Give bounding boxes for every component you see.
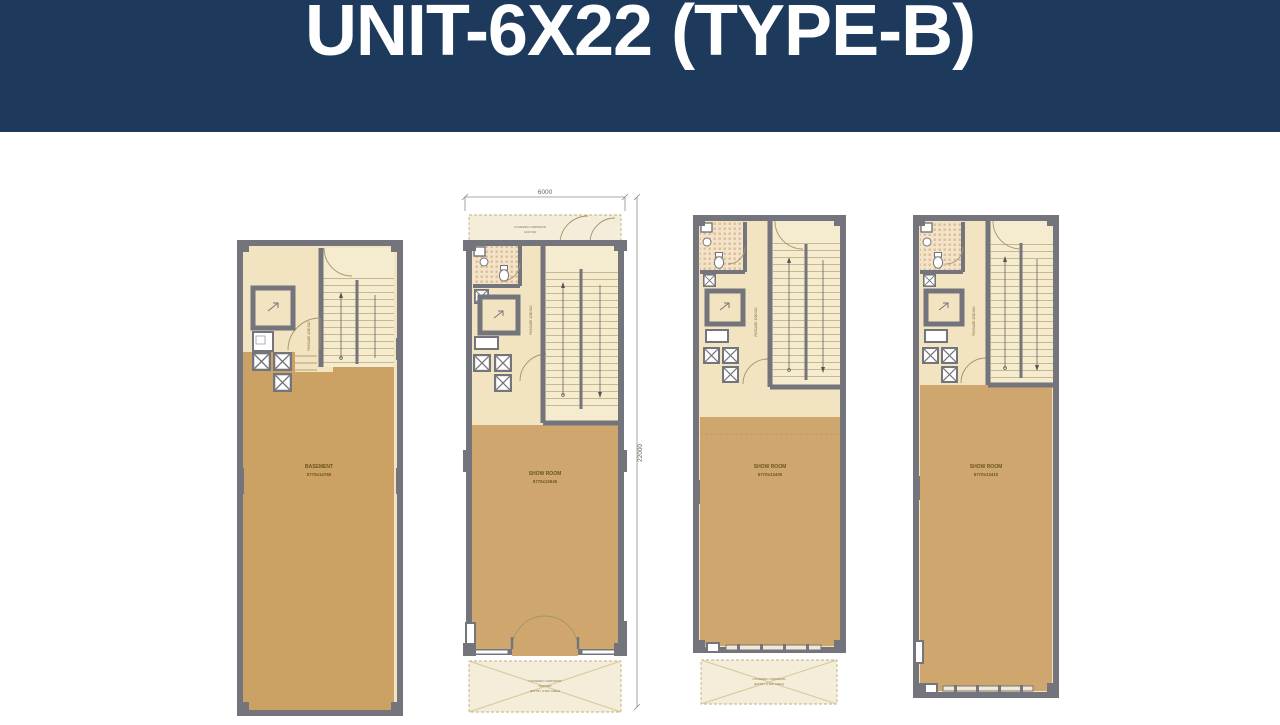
top-covered-corridor: COVERED CORRIDOR 1200 WD bbox=[469, 215, 621, 243]
lift-icon bbox=[707, 291, 743, 324]
svg-text:COVERED CORRIDOR: COVERED CORRIDOR bbox=[752, 677, 786, 681]
duct-icon bbox=[924, 275, 935, 286]
passage-label: PASSAGE 1200 WD bbox=[307, 321, 311, 351]
svg-text:3000 WD: 3000 WD bbox=[539, 684, 553, 688]
toilet bbox=[920, 222, 963, 272]
basement-floor-plan: BASEMENT 5770x14760 PASSAGE 1200 WD bbox=[237, 240, 403, 716]
passage-label: PASSAGE 1200 WD bbox=[754, 307, 758, 337]
svg-text:COVERED CORRIDOR: COVERED CORRIDOR bbox=[528, 679, 562, 683]
ground-floor-plan: 6000 22000 COVERED CORRIDOR 1200 WD bbox=[462, 189, 644, 712]
room-label: SHOW ROOM bbox=[529, 471, 562, 477]
svg-text:(ENTRY STEP AREA): (ENTRY STEP AREA) bbox=[530, 689, 560, 693]
wash-basin-icon bbox=[703, 238, 711, 246]
title-banner: UNIT-6X22 (TYPE-B) bbox=[0, 0, 1280, 132]
ground-stairs bbox=[543, 243, 618, 423]
floor-plans-region: BASEMENT 5770x14760 PASSAGE 1200 WD 6000… bbox=[0, 132, 1280, 720]
showroom-floor bbox=[700, 417, 840, 646]
room-dims: 5770x14760 bbox=[307, 472, 332, 477]
passage-label: PASSAGE 1200 WD bbox=[972, 306, 976, 336]
duct-icon bbox=[923, 348, 938, 363]
counter bbox=[475, 337, 498, 349]
passage-label: PASSAGE 1200 WD bbox=[529, 305, 533, 335]
second-stairs bbox=[988, 218, 1053, 385]
duct-icon bbox=[704, 275, 715, 286]
width-dimension-label: 6000 bbox=[538, 189, 553, 196]
counter bbox=[706, 330, 728, 342]
page-title: UNIT-6X22 (TYPE-B) bbox=[305, 0, 975, 70]
wall-inset bbox=[915, 641, 923, 663]
wall-inset bbox=[466, 623, 475, 645]
room-dims: 5770x13400 bbox=[758, 472, 783, 477]
wash-basin-icon bbox=[923, 238, 931, 246]
duct-icon bbox=[274, 353, 291, 370]
floor-plans-canvas: BASEMENT 5770x14760 PASSAGE 1200 WD 6000… bbox=[0, 132, 1280, 720]
showroom-floor bbox=[920, 385, 1052, 691]
room-label: SHOW ROOM bbox=[754, 464, 787, 470]
room-dims: 5770x12640 bbox=[533, 479, 558, 484]
wall-inset bbox=[707, 643, 719, 652]
duct-icon bbox=[942, 367, 957, 382]
lift-icon bbox=[480, 297, 518, 333]
wall-inset bbox=[925, 684, 937, 693]
duct-icon bbox=[474, 355, 490, 371]
height-dimension-label: 22000 bbox=[637, 444, 644, 462]
duct-icon bbox=[704, 348, 719, 363]
counter bbox=[925, 330, 947, 342]
toilet bbox=[700, 222, 745, 272]
duct-icon bbox=[723, 348, 738, 363]
basement-room-floor bbox=[243, 352, 394, 710]
room-label: SHOW ROOM bbox=[970, 464, 1003, 470]
duct-icon bbox=[274, 374, 291, 391]
duct-icon bbox=[495, 375, 511, 391]
showroom-floor bbox=[472, 425, 618, 649]
svg-text:(ENTRY STEP AREA): (ENTRY STEP AREA) bbox=[754, 682, 784, 686]
width-dimension-line bbox=[462, 194, 628, 211]
wc-icon bbox=[714, 253, 723, 269]
bottom-covered-corridor: COVERED CORRIDOR (ENTRY STEP AREA) bbox=[701, 660, 837, 704]
second-floor-plan: PASSAGE 1200 WD SHOW ROOM 5770x13410 bbox=[913, 215, 1059, 697]
room-dims: 5770x13410 bbox=[974, 472, 999, 477]
duct-icon bbox=[723, 367, 738, 382]
svg-text:COVERED CORRIDOR: COVERED CORRIDOR bbox=[514, 225, 547, 229]
lift-icon bbox=[253, 288, 293, 328]
lift-icon bbox=[926, 291, 962, 324]
svg-text:1200 WD: 1200 WD bbox=[524, 230, 537, 234]
room-label: BASEMENT bbox=[305, 464, 333, 470]
duct-icon bbox=[495, 355, 511, 371]
first-floor-plan: PASSAGE 1200 WD SHOW ROOM 5770x13400 bbox=[693, 215, 846, 704]
wash-basin-icon bbox=[480, 258, 488, 266]
first-stairs bbox=[770, 218, 840, 387]
wc-icon bbox=[499, 266, 508, 282]
duct-icon bbox=[942, 348, 957, 363]
toilet bbox=[473, 246, 520, 286]
duct-icon bbox=[253, 353, 270, 370]
wc-icon bbox=[933, 253, 942, 269]
basement-stairs bbox=[321, 248, 394, 367]
bottom-covered-corridor: COVERED CORRIDOR 3000 WD (ENTRY STEP ARE… bbox=[469, 661, 621, 712]
